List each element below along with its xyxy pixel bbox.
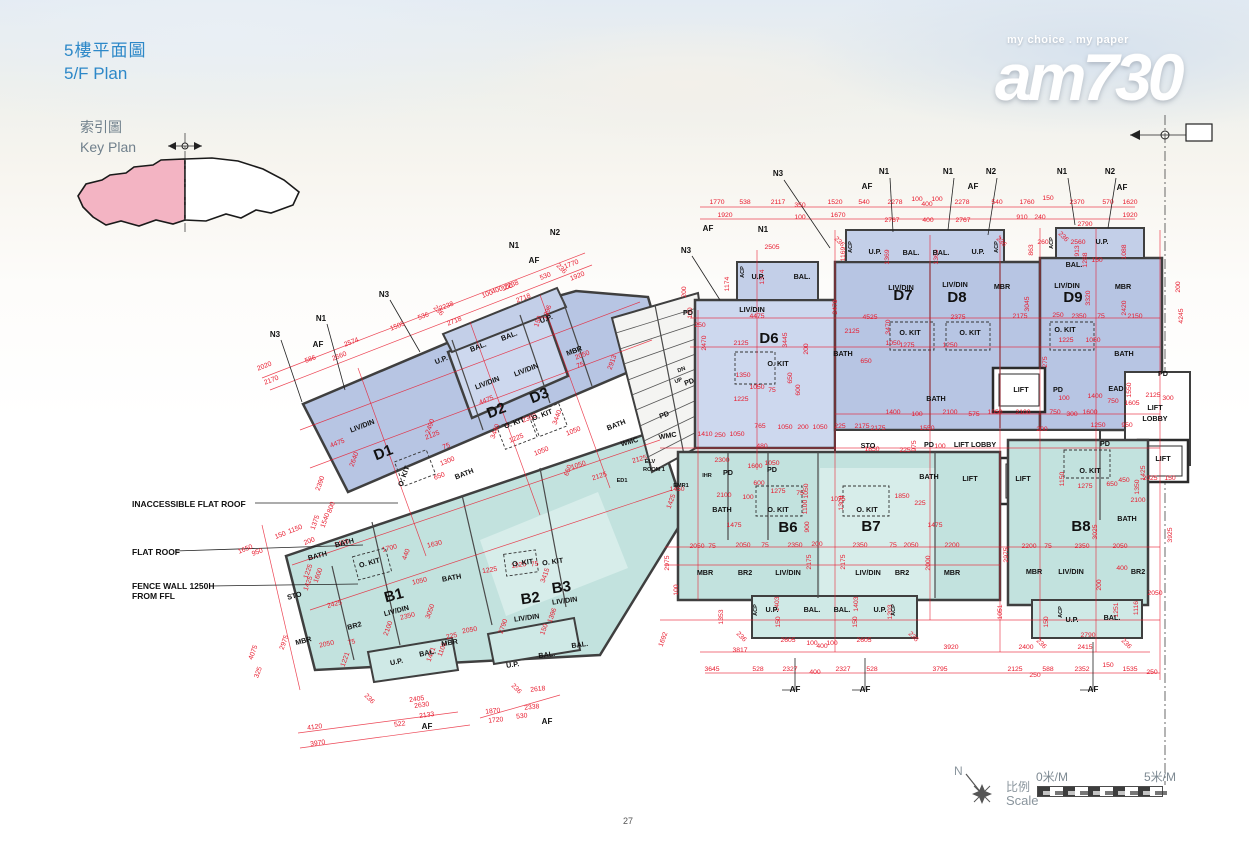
dimension-text: 2175 <box>854 423 869 430</box>
dimension-text: 150 <box>1043 616 1050 628</box>
dimension-text: 100 <box>1058 395 1070 402</box>
dimension-text: 1505 <box>389 321 406 333</box>
room-label: BAL. <box>804 605 821 614</box>
dimension-text: 2050 <box>735 542 750 549</box>
dimension-text: 2125 <box>733 340 748 347</box>
dimension-text: 3445 <box>782 332 789 347</box>
dimension-text: 2050 <box>1112 543 1127 550</box>
room-label: BATH <box>1114 349 1133 358</box>
dimension-text: 1275 <box>1077 483 1092 490</box>
dimension-text: 1174 <box>724 276 731 291</box>
dimension-text: 650 <box>1106 481 1118 488</box>
dimension-text: 2050 <box>903 542 918 549</box>
dimension-text: 2605 <box>856 637 871 644</box>
dimension-text: 150 <box>1164 475 1176 482</box>
room-label: U.P. <box>868 247 881 256</box>
dimension-text: 1350 <box>1134 479 1141 494</box>
dimension-text: 1288 <box>1082 252 1089 267</box>
dimension-text: 250 <box>694 322 706 329</box>
dimension-text: 236 <box>735 630 748 643</box>
dimension-text: 150 <box>852 616 859 628</box>
dimension-text: 2350 <box>1071 313 1086 320</box>
grid-marker-label: AF <box>313 340 324 349</box>
dimension-text: 200 <box>797 424 809 431</box>
room-label: ELV <box>645 459 656 465</box>
dimension-text: 150 <box>775 616 782 628</box>
roof-annotation: FROM FFL <box>132 591 175 601</box>
dimension-text: 1150 <box>287 524 303 536</box>
dimension-text: 2200 <box>944 542 959 549</box>
unit-label: D9 <box>1063 289 1082 306</box>
dimension-text: 1350 <box>735 372 750 379</box>
dimension-text: 4475 <box>749 313 764 320</box>
dimension-text: 260 <box>1037 239 1049 246</box>
dimension-text: 2350 <box>787 542 802 549</box>
dimension-text: 3925 <box>1167 527 1174 542</box>
room-label: PD <box>1053 385 1063 394</box>
dimension-text: 3795 <box>932 666 947 673</box>
dimension-text: 300 <box>1066 411 1078 418</box>
dimension-text: 650 <box>787 372 794 384</box>
dimension-text: 100 <box>911 411 923 418</box>
dimension-text: 2327 <box>835 666 850 673</box>
grid-marker-label: AF <box>1088 685 1099 694</box>
dimension-text: 450 <box>1118 477 1130 484</box>
dimension-text: 1425 <box>1140 465 1147 480</box>
unit-label: B7 <box>861 518 880 535</box>
room-label: LIV/DIN <box>855 568 881 577</box>
dimension-text: 1475 <box>927 522 942 529</box>
dimension-text: 75 <box>708 543 716 550</box>
dimension-text: 650 <box>860 358 872 365</box>
dimension-text: 236 <box>833 235 846 248</box>
dimension-text: 528 <box>752 666 764 673</box>
grid-marker-label: N1 <box>316 314 327 323</box>
dimension-text: 350 <box>794 202 806 209</box>
room-label: LIFT <box>1013 385 1029 394</box>
dimension-text: 225 <box>899 447 911 454</box>
room-label: O. KIT <box>1054 325 1076 334</box>
grid-marker-label: AF <box>1117 183 1128 192</box>
dimension-text: 3470 <box>885 319 892 334</box>
dimension-text: 75 <box>1044 543 1052 550</box>
dimension-text: 2420 <box>1121 300 1128 315</box>
dimension-text: 2415 <box>1077 644 1092 651</box>
dimension-text: 1050 <box>803 483 810 498</box>
room-label: ACP <box>891 604 897 616</box>
dimension-text: 536 <box>417 311 430 322</box>
dimension-text: 1605 <box>1124 400 1139 407</box>
dimension-text: 3320 <box>1085 290 1092 305</box>
scale-bar-lower <box>1043 791 1167 795</box>
dimension-text: 1050 <box>565 426 582 438</box>
dimension-text: 2470 <box>701 335 708 350</box>
dimension-text: 236 <box>1120 637 1133 650</box>
dimension-text: 2605 <box>780 637 795 644</box>
dimension-text: 1600 <box>747 463 762 470</box>
room-label: STO <box>861 441 876 450</box>
grid-marker-label: N3 <box>270 330 281 339</box>
dimension-text: 570 <box>1102 199 1114 206</box>
dimension-text: 275 <box>1042 356 1049 368</box>
room-label: O. KIT <box>1079 466 1101 475</box>
dimension-text: 2352 <box>1074 666 1089 673</box>
room-label: EMR1 <box>673 483 689 489</box>
room-label: PD <box>1158 369 1168 378</box>
dimension-text: 2338 <box>524 703 540 712</box>
room-label: ACP <box>740 266 746 278</box>
dimension-text: 2125 <box>1007 666 1022 673</box>
dimension-text: 1150 <box>1059 471 1066 486</box>
dimension-text: 530 <box>539 271 552 282</box>
room-label: O. KIT <box>959 328 981 337</box>
grid-marker-label: AF <box>862 182 873 191</box>
right-wing-units <box>678 228 1190 638</box>
room-label: BATH <box>712 505 731 514</box>
dimension-text: 2100 <box>942 409 957 416</box>
grid-marker-label: N2 <box>1105 167 1116 176</box>
room-label: BR2 <box>738 568 752 577</box>
room-label: U.P. <box>506 659 520 670</box>
dimension-text: 225 <box>834 423 846 430</box>
grid-marker-label: AF <box>790 685 801 694</box>
dimension-text: 100 <box>931 196 943 203</box>
dimension-text: 1300 <box>838 495 845 510</box>
dimension-text: 150 <box>1042 195 1054 202</box>
dimension-text: 1620 <box>1122 199 1137 206</box>
room-label: BATH <box>605 417 626 432</box>
unit-label: B3 <box>551 578 572 598</box>
dimension-text: 2278 <box>887 199 902 206</box>
dimension-text: 400 <box>809 669 821 676</box>
newspaper-floor-plan-page: 5樓平面圖 5/F Plan 索引圖 Key Plan my choice . … <box>0 0 1249 841</box>
grid-marker-label: N2 <box>550 228 561 237</box>
dimension-text: 1369 <box>884 249 891 264</box>
dimension-text: 2390 <box>315 475 327 492</box>
dimension-text: 950 <box>1121 422 1133 429</box>
dimension-text: 300 <box>1162 395 1174 402</box>
scale-label-english: Scale <box>1006 793 1039 808</box>
dimension-text: 100 <box>794 214 806 221</box>
dimension-text: 1275 <box>899 342 914 349</box>
dimension-text: 1720 <box>488 716 504 725</box>
page-number: 27 <box>608 816 648 826</box>
dimension-text: 250 <box>714 432 726 439</box>
dimension-text: 100 <box>673 584 680 596</box>
dimension-text: 2350 <box>1074 543 1089 550</box>
dimension-text: 75 <box>1097 313 1105 320</box>
dimension-text: 2117 <box>771 199 786 206</box>
dimension-text: 2100 <box>716 492 731 499</box>
dimension-text: 325 <box>253 666 264 679</box>
dimension-text: 2100 <box>1015 409 1030 416</box>
scale-block: N 比例 Scale 0米/M 5米/M <box>940 756 1220 820</box>
dimension-text: 1550 <box>919 425 934 432</box>
room-label: U.P. <box>1065 615 1078 624</box>
grid-marker-label: AF <box>422 722 433 731</box>
dimension-text: 1770 <box>709 199 724 206</box>
dimension-text: 100 <box>826 640 838 647</box>
dimension-text: 150 <box>274 530 287 541</box>
grid-marker-label: N1 <box>879 167 890 176</box>
room-label: BATH <box>833 349 852 358</box>
dimension-text: 1250 <box>942 342 957 349</box>
dimension-text: 1540 <box>320 512 332 529</box>
room-label: LIV/DIN <box>942 280 968 289</box>
room-label: BAL. <box>794 272 811 281</box>
dimension-text: 528 <box>866 666 878 673</box>
roof-annotation: FLAT ROOF <box>132 547 180 557</box>
grid-marker-label: N1 <box>509 241 520 250</box>
dimension-text: 4075 <box>248 644 260 661</box>
dimension-text: 2175 <box>1012 313 1027 320</box>
room-label: PD <box>767 465 777 474</box>
dimension-text: 750 <box>1049 409 1061 416</box>
dimension-text: 540 <box>991 199 1003 206</box>
dimension-text: 522 <box>394 720 406 729</box>
key-plan-drawing <box>78 133 299 232</box>
dimension-text: 1520 <box>827 199 842 206</box>
dimension-text: 2050 <box>689 543 704 550</box>
dimension-text: 538 <box>739 199 751 206</box>
room-label: ROOM 1 <box>643 467 665 473</box>
room-label: LIFT <box>1015 474 1031 483</box>
grid-marker-label: AF <box>529 256 540 265</box>
dimension-text: 1535 <box>1122 666 1137 673</box>
room-label: ACP <box>1049 237 1055 249</box>
dimension-text: 2560 <box>1070 239 1085 246</box>
dimension-text: 200 <box>1175 281 1182 293</box>
room-label: MBR <box>1115 282 1132 291</box>
dimension-text: 765 <box>754 423 766 430</box>
dimension-text: 900 <box>804 521 811 533</box>
room-label: LIFT <box>1147 403 1163 412</box>
dimension-text: 2505 <box>764 244 779 251</box>
dimension-text: 1050 <box>729 431 744 438</box>
room-label: LIV/DIN <box>888 283 914 292</box>
room-label: PD <box>723 468 733 477</box>
dimension-text: 2470 <box>832 299 839 314</box>
room-label: BATH <box>919 472 938 481</box>
dimension-text: 2175 <box>806 554 813 569</box>
dimension-text: 2400 <box>1018 644 1033 651</box>
floor-plan-drawing: 1770538211735015205402278100400100227854… <box>0 0 1249 841</box>
dimension-text: 1088 <box>1121 244 1128 259</box>
room-label: IHR <box>702 473 712 479</box>
dimension-text: 2375 <box>950 314 965 321</box>
dimension-text: 400 <box>922 217 934 224</box>
dimension-text: 1353 <box>718 609 725 624</box>
dimension-text: 3817 <box>732 647 747 654</box>
room-label: O. KIT <box>899 328 921 337</box>
dimension-text: 1050 <box>987 409 1002 416</box>
dimension-text: 75 <box>889 542 897 549</box>
north-arrow-icon <box>962 772 1002 812</box>
room-label: BR2 <box>895 568 909 577</box>
dimension-text: 400 <box>1116 565 1128 572</box>
grid-marker-label: N3 <box>681 246 692 255</box>
room-label: BAL. <box>1066 260 1083 269</box>
dimension-text: 1300 <box>439 456 456 468</box>
dimension-text: 2000 <box>925 555 932 570</box>
dimension-text: 1050 <box>749 384 764 391</box>
dimension-text: 225 <box>914 500 926 507</box>
dimension-text: 75 <box>768 387 776 394</box>
grid-marker-label: AF <box>542 717 553 726</box>
dimension-text: 2020 <box>256 361 273 373</box>
dimension-text: 975 <box>911 440 918 452</box>
dimension-text: 1116 <box>1133 601 1140 615</box>
dimension-text: 236 <box>1035 637 1048 650</box>
dimension-text: 2300 <box>714 457 729 464</box>
dimension-text: 2370 <box>1069 199 1084 206</box>
dimension-text: 1870 <box>485 707 501 716</box>
room-label: U.P. <box>971 247 984 256</box>
grid-marker-label: AF <box>703 224 714 233</box>
room-label: ACP <box>1058 606 1064 618</box>
dimension-text: 750 <box>1107 398 1119 405</box>
dimension-text: 588 <box>1042 666 1054 673</box>
dimension-text: 1920 <box>1122 212 1137 219</box>
room-label: MBR <box>697 568 714 577</box>
room-label: EAD <box>1108 384 1123 393</box>
room-label: ACP <box>994 241 1000 253</box>
dimension-text: 575 <box>968 411 980 418</box>
dimension-text: 2350 <box>852 542 867 549</box>
room-label: BAL. <box>903 248 920 257</box>
dimension-text: 530 <box>516 712 528 720</box>
dimension-text: 1051 <box>997 604 1004 619</box>
dimension-text: 2150 <box>1127 313 1142 320</box>
dimension-text: 600 <box>753 480 765 487</box>
dimension-text: 863 <box>1028 244 1035 256</box>
dimension-text: 100 <box>934 443 946 450</box>
dimension-text: 1850 <box>894 493 909 500</box>
dimension-text: 1692 <box>658 631 670 648</box>
dimension-text: 600 <box>795 384 802 396</box>
dimension-text: 480 <box>756 443 768 450</box>
dimension-text: 1169 <box>840 246 847 261</box>
dimension-text: 1100 <box>802 499 809 514</box>
dimension-text: 2125 <box>1145 392 1160 399</box>
dimension-text: 2718 <box>446 316 463 328</box>
dimension-text: 1403 <box>853 596 860 611</box>
dimension-text: 2175 <box>840 554 847 569</box>
dimension-text: 1250 <box>1090 422 1105 429</box>
dimension-text: 1920 <box>717 212 732 219</box>
dimension-text: 1670 <box>830 212 845 219</box>
room-label: ACP <box>848 241 854 253</box>
room-label: LIFT <box>962 474 978 483</box>
room-label: LIV/DIN <box>1058 567 1084 576</box>
dimension-text: 2327 <box>782 666 797 673</box>
dimension-text: 1920 <box>569 271 586 283</box>
room-label: BAL. <box>1104 613 1121 622</box>
room-label: O. KIT <box>767 505 789 514</box>
room-label: LIFT LOBBY <box>954 440 997 449</box>
dimension-text: 2133 <box>419 711 435 720</box>
room-label: BR2 <box>1131 567 1145 576</box>
dimension-text: 3645 <box>704 666 719 673</box>
dimension-text: 2975 <box>664 555 671 570</box>
roof-annotation: FENCE WALL 1250H <box>132 581 215 591</box>
room-label: LIV/DIN <box>739 305 765 314</box>
room-label: BATH <box>1117 514 1136 523</box>
dimension-text: 1550 <box>1126 382 1133 397</box>
grid-marker-label: N1 <box>943 167 954 176</box>
dimension-text: 236 <box>363 692 376 705</box>
dimension-text: 250 <box>1029 672 1041 679</box>
dimension-text: 1225 <box>733 396 748 403</box>
unit-label: D6 <box>759 330 778 347</box>
dimension-text: 1050 <box>777 424 792 431</box>
dimension-text: 200 <box>803 343 810 355</box>
dimension-text: 1400 <box>885 409 900 416</box>
dimension-text: 250 <box>1146 669 1158 676</box>
dimension-text: 1600 <box>1082 409 1097 416</box>
dimension-text: 1400 <box>1087 393 1102 400</box>
dimension-text: 2630 <box>414 701 430 710</box>
room-label: MBR <box>1026 567 1043 576</box>
scale-start-label: 0米/M <box>1036 768 1068 785</box>
dimension-text: 3920 <box>943 644 958 651</box>
dimension-text: 2767 <box>884 217 899 224</box>
grid-marker-label: N3 <box>773 169 784 178</box>
dimension-text: 1225 <box>1058 337 1073 344</box>
room-label: BAL. <box>933 248 950 257</box>
dimension-text: 2100 <box>1130 497 1145 504</box>
dimension-text: 1050 <box>1085 337 1100 344</box>
dimension-text: 1375 <box>310 514 322 531</box>
dimension-text: 3440 <box>552 409 564 426</box>
dimension-text: 913 <box>1074 245 1081 257</box>
dimension-text: 200 <box>1096 579 1103 591</box>
grid-marker-label: AF <box>860 685 871 694</box>
dimension-text: 1275 <box>770 488 785 495</box>
unit-label: B8 <box>1071 518 1090 535</box>
room-label: PD <box>1100 439 1110 448</box>
dimension-text: 2574 <box>343 337 360 349</box>
dimension-text: 150 <box>1091 257 1103 264</box>
dimension-text: 910 <box>1016 214 1028 221</box>
dimension-text: 1050 <box>812 424 827 431</box>
room-label: LIFT <box>1155 454 1171 463</box>
dimension-text: 3045 <box>1024 296 1031 311</box>
room-label: BATH <box>453 466 474 481</box>
room-label: BAL. <box>834 605 851 614</box>
room-label: U.P. <box>751 272 764 281</box>
dimension-text: 2790 <box>1080 632 1095 639</box>
room-label: LIV/DIN <box>1054 281 1080 290</box>
room-label: MBR <box>994 282 1011 291</box>
dimension-text: 2050 <box>1147 590 1162 597</box>
dimension-text: 1410 <box>697 431 712 438</box>
unit-label: B2 <box>520 589 541 609</box>
dimension-text: 650 <box>433 471 446 482</box>
room-label: PD <box>924 440 934 449</box>
dimension-text: 2790 <box>1077 221 1092 228</box>
room-label: MBR <box>944 568 961 577</box>
dimension-text: 4120 <box>307 723 323 732</box>
dimension-text: 2618 <box>530 685 546 694</box>
dimension-text: 4245 <box>1178 308 1185 323</box>
room-label: O. KIT <box>856 505 878 514</box>
dimension-text: 3025 <box>1092 524 1099 539</box>
dimension-text: 100 <box>742 494 754 501</box>
dimension-text: 2125 <box>844 328 859 335</box>
unit-label: D8 <box>947 289 966 306</box>
room-label: ED1 <box>617 478 628 484</box>
